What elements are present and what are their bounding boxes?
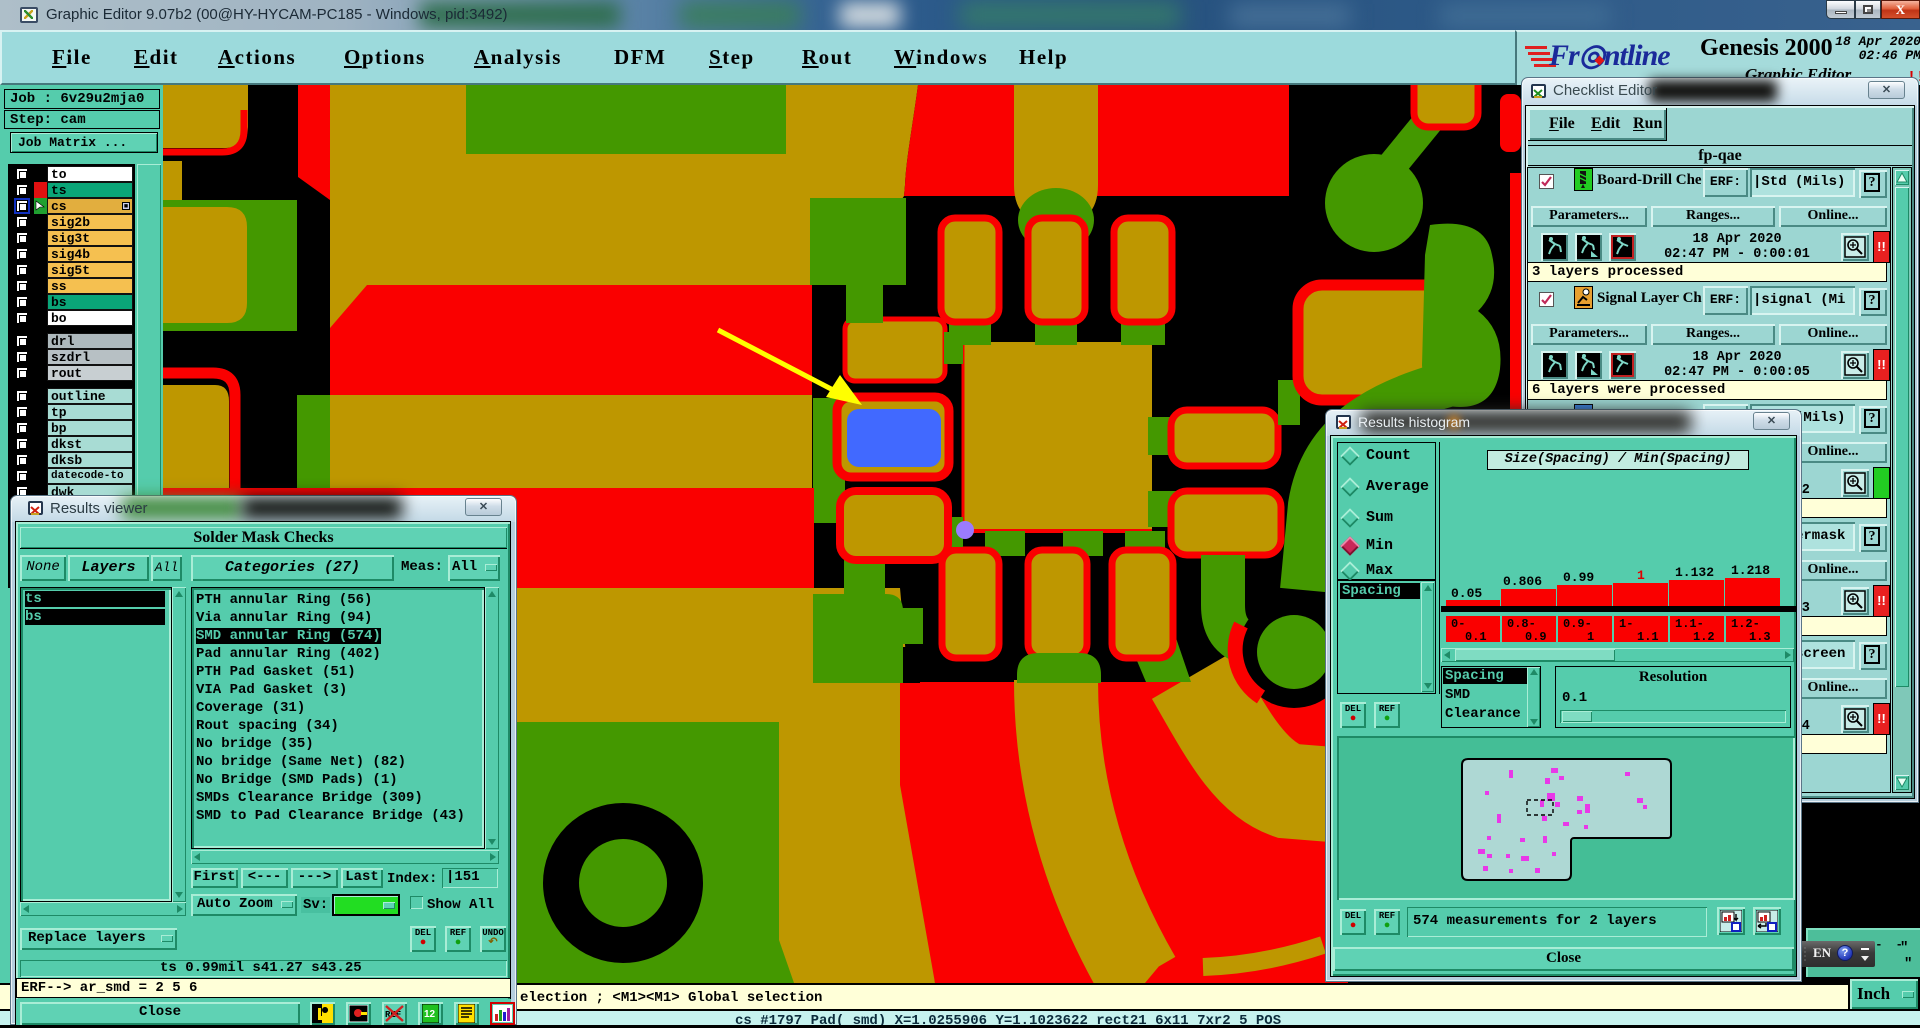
svg-text:1.218: 1.218 <box>1731 563 1770 578</box>
svg-text:1.2: 1.2 <box>1693 630 1715 644</box>
svg-text:1.2-: 1.2- <box>1731 617 1760 631</box>
svg-text:0.1: 0.1 <box>1465 630 1487 644</box>
svg-text:1.132: 1.132 <box>1675 565 1714 580</box>
svg-text:1-: 1- <box>1619 617 1633 631</box>
svg-text:0.9: 0.9 <box>1525 630 1547 644</box>
svg-text:0-: 0- <box>1451 617 1465 631</box>
svg-text:1.3: 1.3 <box>1749 630 1771 644</box>
svg-text:1.1-: 1.1- <box>1675 617 1704 631</box>
svg-text:0.806: 0.806 <box>1503 574 1542 589</box>
svg-text:1.1: 1.1 <box>1637 630 1659 644</box>
svg-text:0.05: 0.05 <box>1451 586 1482 601</box>
svg-text:0.8-: 0.8- <box>1507 617 1536 631</box>
svg-text:0.99: 0.99 <box>1563 570 1594 585</box>
svg-text:1: 1 <box>1587 630 1594 644</box>
svg-text:0.9-: 0.9- <box>1563 617 1592 631</box>
svg-text:12: 12 <box>424 1009 436 1020</box>
svg-text:1: 1 <box>1637 568 1645 583</box>
